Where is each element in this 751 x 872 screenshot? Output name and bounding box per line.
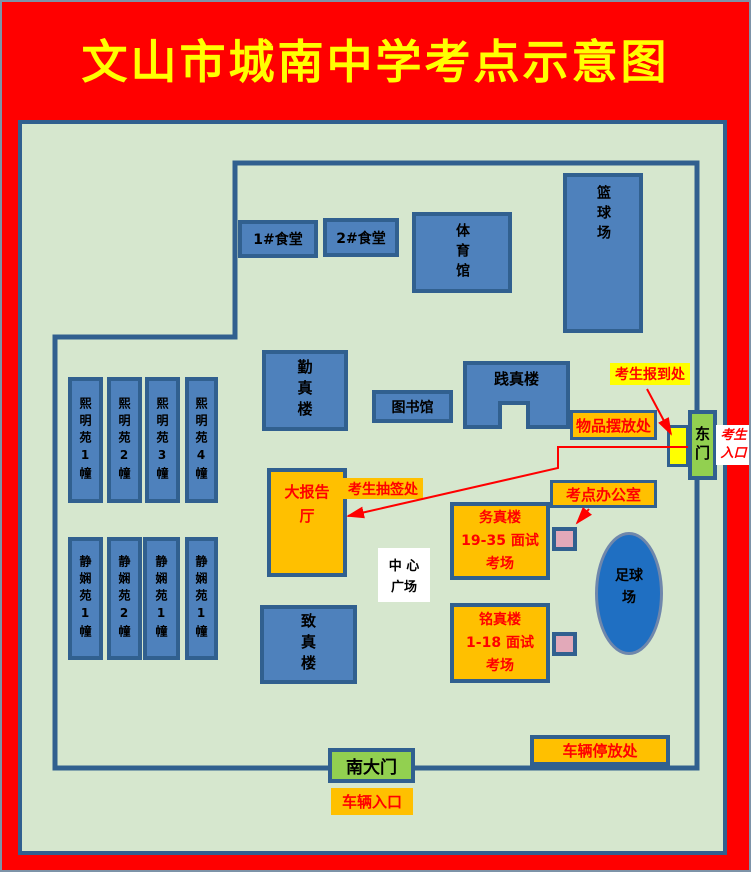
building-label: 1#食堂 [253, 229, 302, 249]
building-label: 2#食堂 [336, 228, 385, 248]
building-jingxianyuan-4: 静娴苑1幢 [185, 537, 218, 660]
label-text: 车辆入口 [342, 791, 402, 812]
building-jingxianyuan-2: 静娴苑2幢 [107, 537, 142, 660]
building-ximingyuan-3: 熙明苑3幢 [145, 377, 180, 503]
building-ximingyuan-2: 熙明苑2幢 [107, 377, 142, 503]
building-label: 熙明苑3幢 [154, 397, 171, 484]
building-wuzhenlou-interview-rooms: 务真楼 19-35 面试 考场 [450, 502, 550, 580]
building-label-line: 铭真楼 [466, 609, 534, 632]
label-site-office: 考点办公室 [550, 480, 657, 508]
building-jingxianyuan-3: 静娴苑1幢 [143, 537, 180, 660]
checkin-booth-box [667, 425, 689, 467]
label-text: 考生报到处 [615, 364, 685, 384]
label-vehicle-entrance: 车辆入口 [331, 788, 413, 815]
building-ximingyuan-1: 熙明苑1幢 [68, 377, 103, 503]
building-zhizhenlou: 致真楼 [260, 605, 357, 684]
label-text: 物品摆放处 [576, 415, 651, 436]
football-field: 足球 场 [595, 532, 663, 655]
building-label: 图书馆 [392, 397, 434, 417]
building-jianzhenlou-label: 践真楼 [465, 368, 568, 389]
building-mingzhenlou-interview-rooms: 铭真楼 1-18 面试 考场 [450, 603, 550, 683]
building-label: 熙明苑2幢 [116, 397, 133, 484]
football-label-line: 足球 [615, 565, 643, 587]
label-belongings-storage: 物品摆放处 [570, 410, 657, 440]
football-label-line: 场 [615, 587, 643, 609]
building-label: 静娴苑1幢 [193, 555, 210, 642]
label-candidate-entrance: 考生 入口 [716, 425, 751, 465]
building-ximingyuan-4: 熙明苑4幢 [185, 377, 218, 503]
building-label: 篮球场 [593, 185, 613, 245]
building-label-line: 考场 [461, 553, 539, 576]
south-gate: 南大门 [328, 748, 415, 783]
building-library: 图书馆 [372, 390, 453, 423]
building-qinzhenlou: 勤真楼 [262, 350, 348, 431]
office-box-wuzhen [552, 527, 577, 551]
building-jingxianyuan-1: 静娴苑1幢 [68, 537, 103, 660]
parking-area: 车辆停放处 [530, 735, 670, 766]
building-label-line: 考场 [466, 655, 534, 678]
building-lecture-hall: 大报告 厅 [267, 468, 347, 577]
label-lottery-draw: 考生抽签处 [343, 478, 423, 499]
building-label-line: 厅 [284, 504, 329, 528]
building-label-line: 1-18 面试 [466, 632, 534, 655]
building-label: 静娴苑1幢 [153, 555, 170, 642]
building-canteen-2: 2#食堂 [323, 218, 399, 257]
building-gymnasium: 体育馆 [412, 212, 512, 293]
plaza-label-line: 中 心 [389, 556, 420, 577]
label-text-line: 考生 [720, 427, 746, 445]
office-box-mingzhen [552, 632, 577, 656]
building-canteen-1: 1#食堂 [238, 220, 318, 258]
parking-label: 车辆停放处 [562, 740, 637, 761]
building-label: 静娴苑2幢 [116, 555, 133, 642]
map-title: 文山市城南中学考点示意图 [0, 0, 751, 118]
gate-label: 南大门 [346, 753, 397, 778]
plaza-label-line: 广场 [389, 577, 420, 598]
building-label: 静娴苑1幢 [77, 555, 94, 642]
gate-label: 东门 [692, 426, 713, 464]
building-basketball-court: 篮球场 [563, 173, 643, 333]
building-label: 勤真楼 [295, 359, 316, 422]
building-label: 熙明苑4幢 [193, 397, 210, 484]
east-gate: 东门 [688, 410, 717, 480]
label-candidate-checkin: 考生报到处 [610, 363, 690, 385]
building-label: 熙明苑1幢 [77, 397, 94, 484]
building-label-line: 19-35 面试 [461, 530, 539, 553]
label-text-line: 入口 [720, 445, 746, 463]
label-text: 考点办公室 [566, 484, 641, 505]
building-label-line: 大报告 [284, 480, 329, 504]
building-label-line: 务真楼 [461, 507, 539, 530]
building-label: 体育馆 [452, 223, 472, 283]
exam-site-map: 文山市城南中学考点示意图 1#食堂 2#食堂 体育馆 篮球场 勤真楼 图书馆 践… [0, 0, 751, 872]
building-label: 致真楼 [298, 613, 319, 676]
label-text: 考生抽签处 [348, 479, 418, 499]
central-plaza: 中 心 广场 [378, 548, 430, 602]
